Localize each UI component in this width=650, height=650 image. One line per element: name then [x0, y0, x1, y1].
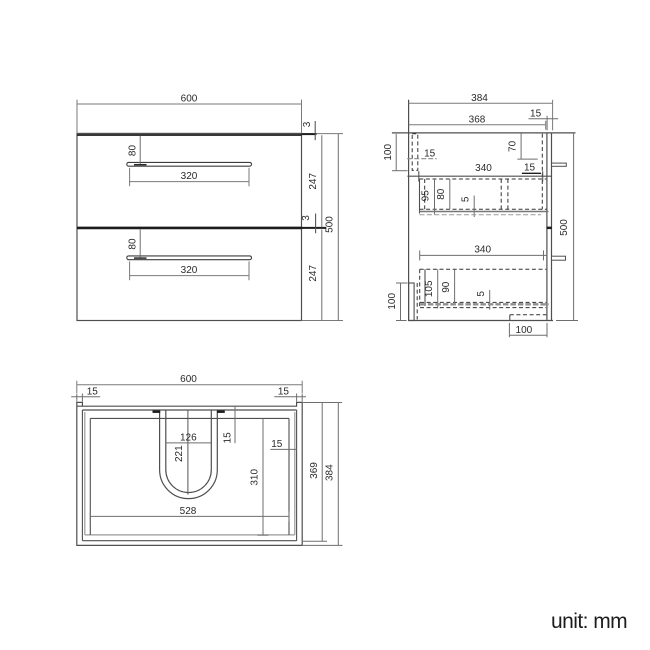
svg-text:15: 15	[530, 108, 542, 119]
svg-text:247: 247	[308, 173, 319, 190]
svg-text:384: 384	[325, 464, 336, 481]
svg-text:15: 15	[271, 439, 283, 450]
svg-text:500: 500	[559, 219, 570, 236]
svg-text:340: 340	[475, 163, 492, 174]
svg-text:600: 600	[180, 374, 197, 385]
svg-text:3: 3	[302, 121, 313, 127]
svg-text:340: 340	[474, 245, 491, 256]
svg-text:320: 320	[181, 171, 198, 182]
svg-text:15: 15	[524, 163, 536, 174]
svg-text:100: 100	[387, 293, 398, 310]
svg-text:95: 95	[421, 190, 432, 202]
svg-text:70: 70	[508, 140, 519, 152]
svg-text:528: 528	[180, 506, 197, 517]
svg-text:500: 500	[325, 216, 336, 233]
svg-text:5: 5	[476, 291, 487, 297]
svg-text:80: 80	[436, 188, 447, 200]
svg-text:600: 600	[181, 94, 198, 105]
svg-text:15: 15	[87, 386, 99, 397]
svg-text:15: 15	[223, 432, 234, 444]
svg-text:15: 15	[278, 386, 290, 397]
svg-text:80: 80	[128, 238, 139, 250]
svg-text:384: 384	[471, 93, 488, 104]
svg-text:100: 100	[383, 144, 394, 161]
svg-text:105: 105	[424, 280, 435, 297]
svg-text:80: 80	[128, 145, 139, 157]
svg-text:90: 90	[441, 281, 452, 293]
svg-text:221: 221	[174, 445, 185, 462]
svg-text:247: 247	[308, 265, 319, 282]
svg-text:3: 3	[301, 215, 312, 221]
svg-text:126: 126	[180, 432, 197, 443]
svg-text:100: 100	[516, 325, 533, 336]
svg-text:5: 5	[460, 196, 471, 202]
svg-text:369: 369	[309, 462, 320, 479]
svg-text:368: 368	[469, 114, 486, 125]
svg-text:unit: mm: unit: mm	[551, 610, 627, 633]
svg-text:15: 15	[424, 149, 436, 160]
svg-text:320: 320	[181, 265, 198, 276]
svg-text:310: 310	[249, 469, 260, 486]
